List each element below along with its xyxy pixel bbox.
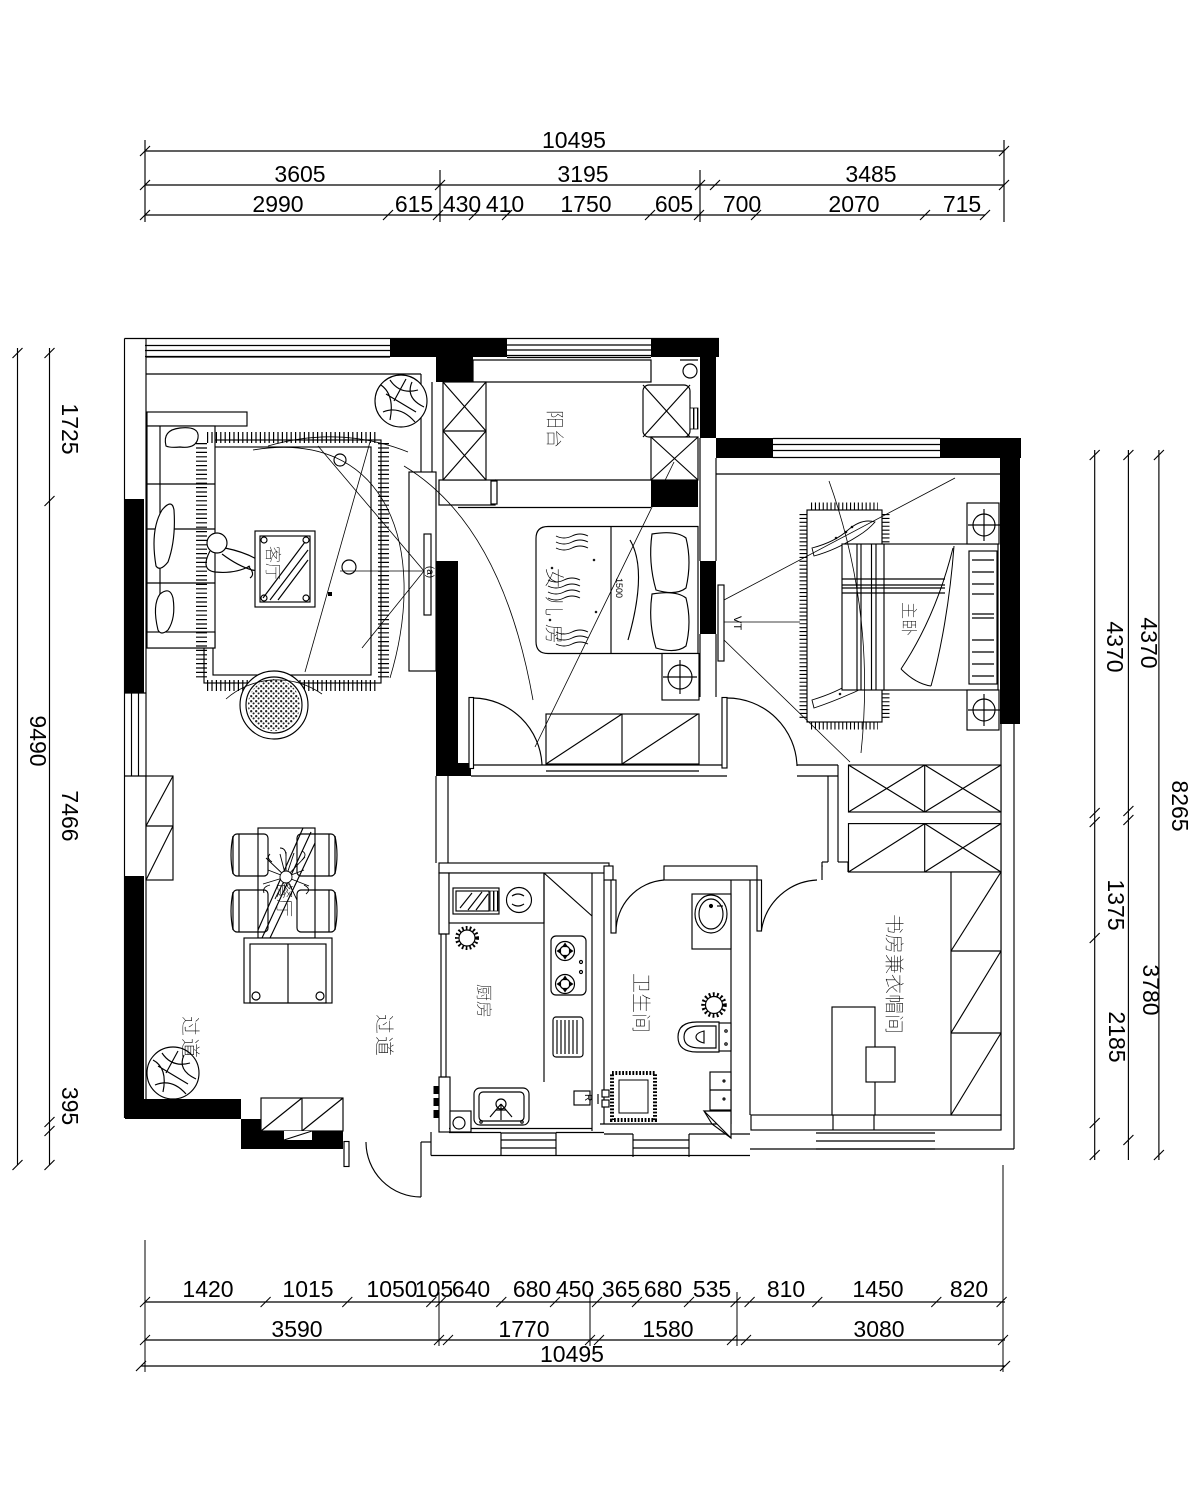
svg-text:VT: VT <box>731 616 743 630</box>
svg-text:10495: 10495 <box>542 127 606 153</box>
svg-text:2070: 2070 <box>828 191 879 217</box>
svg-text:615: 615 <box>395 191 433 217</box>
svg-text:640: 640 <box>452 1276 490 1302</box>
svg-text:2990: 2990 <box>252 191 303 217</box>
svg-text:105: 105 <box>415 1276 453 1302</box>
svg-text:9490: 9490 <box>25 715 51 766</box>
svg-text:395: 395 <box>57 1087 83 1125</box>
svg-text:4370: 4370 <box>1136 617 1162 668</box>
svg-text:605: 605 <box>655 191 693 217</box>
svg-text:535: 535 <box>693 1276 731 1302</box>
svg-text:1375: 1375 <box>1103 879 1129 930</box>
svg-text:(a): (a) <box>424 566 435 578</box>
svg-text:1450: 1450 <box>852 1276 903 1302</box>
svg-text:7466: 7466 <box>57 790 83 841</box>
svg-text:8265: 8265 <box>1167 780 1193 831</box>
svg-text:R: R <box>582 1094 593 1101</box>
svg-text:2185: 2185 <box>1104 1011 1130 1062</box>
svg-text:3195: 3195 <box>557 161 608 187</box>
svg-text:1420: 1420 <box>182 1276 233 1302</box>
svg-text:1015: 1015 <box>282 1276 333 1302</box>
svg-text:680: 680 <box>644 1276 682 1302</box>
svg-text:820: 820 <box>950 1276 988 1302</box>
svg-text:450: 450 <box>556 1276 594 1302</box>
svg-text:430: 430 <box>443 191 481 217</box>
svg-text:365: 365 <box>602 1276 640 1302</box>
svg-text:1580: 1580 <box>642 1316 693 1342</box>
svg-text:1770: 1770 <box>498 1316 549 1342</box>
svg-text:3485: 3485 <box>845 161 896 187</box>
svg-text:1050: 1050 <box>366 1276 417 1302</box>
svg-text:1725: 1725 <box>57 403 83 454</box>
svg-text:3080: 3080 <box>853 1316 904 1342</box>
svg-text:1500: 1500 <box>614 578 624 598</box>
svg-text:3780: 3780 <box>1138 964 1164 1015</box>
svg-text:715: 715 <box>943 191 981 217</box>
svg-text:4370: 4370 <box>1102 621 1128 672</box>
svg-text:810: 810 <box>767 1276 805 1302</box>
svg-text:3590: 3590 <box>271 1316 322 1342</box>
svg-text:3605: 3605 <box>274 161 325 187</box>
svg-text:10495: 10495 <box>540 1341 604 1367</box>
svg-text:410: 410 <box>486 191 524 217</box>
svg-text:700: 700 <box>723 191 761 217</box>
svg-text:1750: 1750 <box>560 191 611 217</box>
svg-text:680: 680 <box>513 1276 551 1302</box>
